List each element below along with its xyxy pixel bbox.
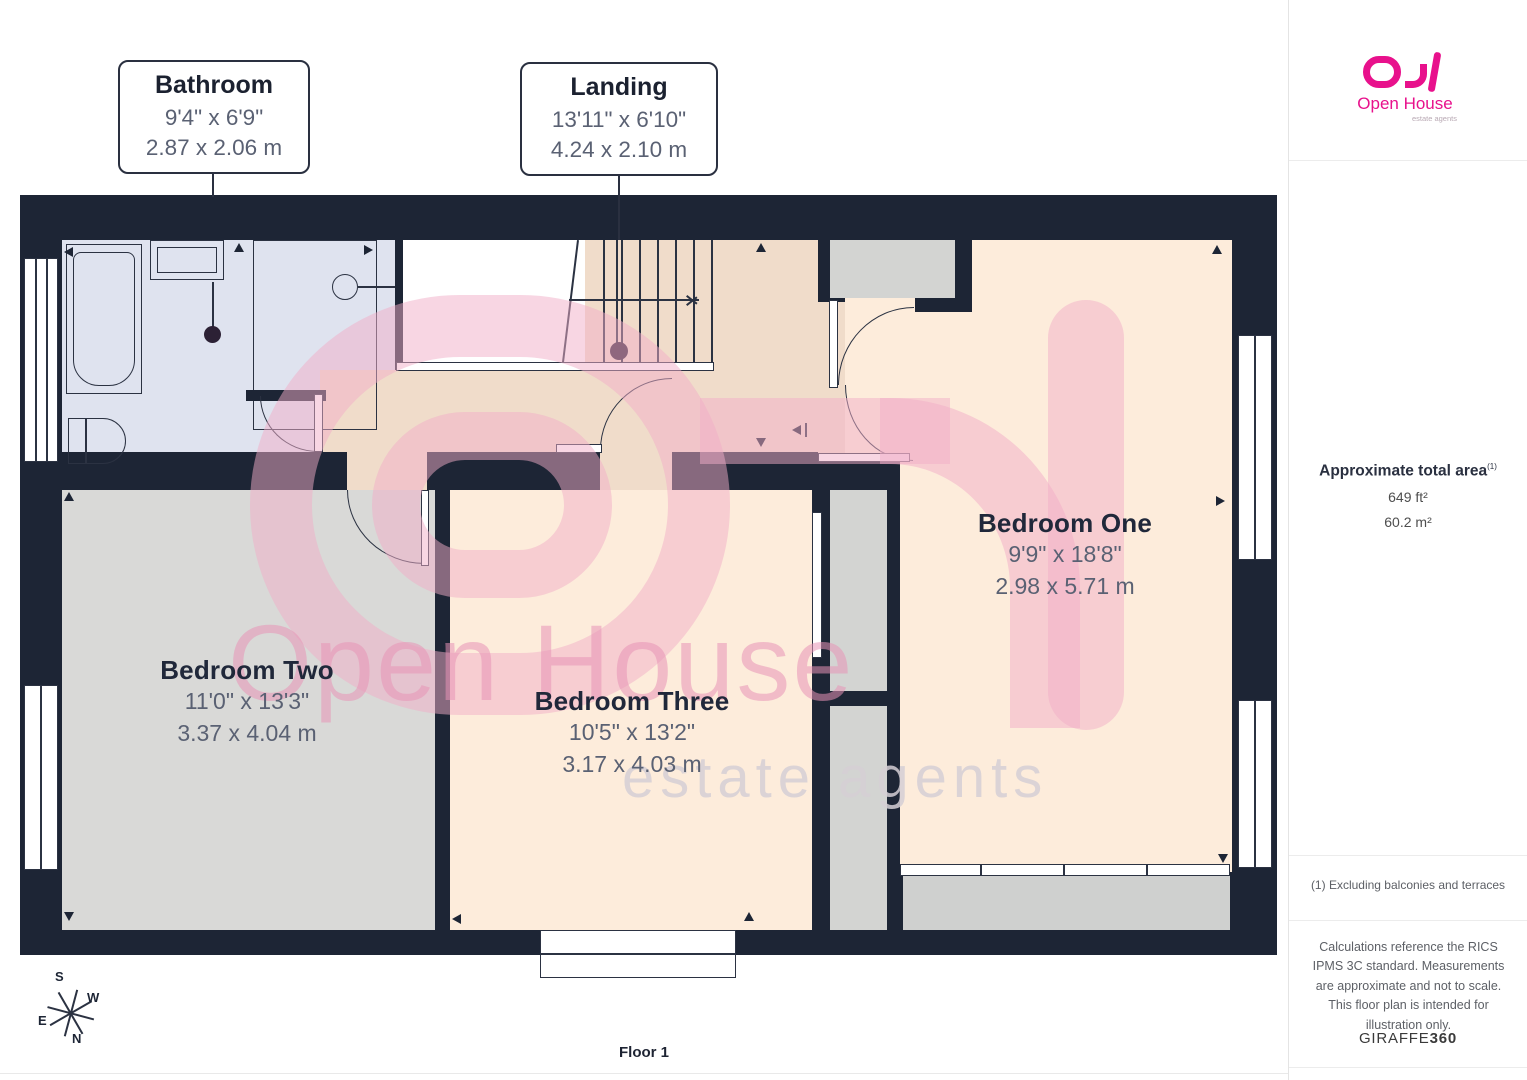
bathtub-inner xyxy=(73,252,135,386)
logo-brand-text: Open House xyxy=(1345,94,1465,114)
dimension-arrow xyxy=(234,243,244,252)
compass-north: N xyxy=(72,1031,81,1046)
sidebar-divider xyxy=(1289,920,1527,921)
area-footnote: (1) Excluding balconies and terraces xyxy=(1297,878,1519,892)
callout-title: Bathroom xyxy=(120,71,308,100)
room-dims-metric: 2.98 x 5.71 m xyxy=(905,571,1225,603)
stair-handrail xyxy=(616,240,618,350)
openhouse-logo: Open House estate agents xyxy=(1353,50,1463,130)
bedroom-one-door-leaf xyxy=(818,453,910,462)
dimension-arrow xyxy=(452,914,461,924)
juliet-window xyxy=(900,864,1230,876)
dimension-tick xyxy=(805,423,807,437)
storage-door-leaf xyxy=(812,512,822,658)
floor-label: Floor 1 xyxy=(0,1044,1288,1061)
compass-east: E xyxy=(38,1013,47,1028)
juliet-mullion xyxy=(1146,864,1148,876)
sidebar-divider xyxy=(1289,160,1527,161)
window-left-bathroom xyxy=(24,258,58,462)
landing-callout: Landing 13'11" x 6'10" 4.24 x 2.10 m xyxy=(520,62,718,176)
room-dims-imperial: 10'5" x 13'2" xyxy=(472,717,792,749)
logo-leg-icon xyxy=(1428,52,1442,93)
bathroom-callout-connector xyxy=(212,173,214,197)
room-title: Bedroom Three xyxy=(472,686,792,717)
dimension-arrow xyxy=(64,247,73,257)
stairwell-void xyxy=(403,240,585,366)
window-mullion xyxy=(35,259,37,461)
disclaimer-text: Calculations reference the RICS IPMS 3C … xyxy=(1306,938,1511,1035)
floorplan-page: Open House estate agents Bedroom Two 11'… xyxy=(0,0,1527,1080)
light-point-bathroom xyxy=(204,326,221,343)
window-mullion xyxy=(541,953,735,955)
bedroom-three-door-leaf xyxy=(556,444,602,453)
closet-floor xyxy=(830,240,955,298)
bedroom-two-door-leaf xyxy=(421,490,429,566)
stair-newel-dot xyxy=(610,342,628,360)
total-area-block: Approximate total area(1) 649 ft² 60.2 m… xyxy=(1297,462,1519,530)
total-area-metric: 60.2 m² xyxy=(1297,514,1519,530)
room-title: Bedroom Two xyxy=(87,655,407,686)
dimension-arrow xyxy=(64,492,74,501)
shower-arm-line xyxy=(358,286,395,288)
sidebar-divider xyxy=(1289,855,1527,856)
bathroom-callout: Bathroom 9'4" x 6'9" 2.87 x 2.06 m xyxy=(118,60,310,174)
dimension-arrow xyxy=(756,243,766,252)
room-dims-imperial: 9'9" x 18'8" xyxy=(905,539,1225,571)
landing-callout-connector xyxy=(618,175,620,240)
dimension-arrow xyxy=(1212,245,1222,254)
callout-imperial: 13'11" x 6'10" xyxy=(522,105,716,135)
info-sidebar: Open House estate agents Approximate tot… xyxy=(1288,0,1527,1080)
stair-tread xyxy=(603,240,605,366)
bathroom-door-leaf xyxy=(314,394,323,452)
logo-tagline-text: estate agents xyxy=(1377,114,1457,123)
callout-imperial: 9'4" x 6'9" xyxy=(120,103,308,133)
room-title: Bedroom One xyxy=(905,508,1225,539)
closet-door-leaf xyxy=(829,300,838,388)
room-dims-metric: 3.37 x 4.04 m xyxy=(87,718,407,750)
total-area-imperial: 649 ft² xyxy=(1297,489,1519,505)
total-area-heading: Approximate total area xyxy=(1319,462,1487,479)
stair-tread xyxy=(657,240,659,366)
dimension-arrow xyxy=(1216,496,1225,506)
callout-title: Landing xyxy=(522,73,716,102)
compass-south: S xyxy=(55,969,64,984)
stair-landing-edge xyxy=(396,362,714,371)
toilet-tank-icon xyxy=(68,418,86,464)
window-mullion xyxy=(1254,701,1256,867)
storage-column-floor xyxy=(830,490,887,930)
window-mullion xyxy=(46,259,48,461)
callout-metric: 2.87 x 2.06 m xyxy=(120,133,308,163)
callout-metric: 4.24 x 2.10 m xyxy=(522,135,716,165)
sink-stem-line xyxy=(212,282,214,328)
room-dims-imperial: 11'0" x 13'3" xyxy=(87,686,407,718)
closet-wall-right xyxy=(955,240,972,312)
provider-suffix: 360 xyxy=(1430,1030,1457,1047)
juliet-mullion xyxy=(1063,864,1065,876)
window-mullion xyxy=(1254,336,1256,559)
bedroom-three-door-gap xyxy=(600,452,672,490)
dimension-arrow xyxy=(744,912,754,921)
dimension-arrow xyxy=(364,245,373,255)
dimension-arrow xyxy=(64,912,74,921)
provider-name: GIRAFFE xyxy=(1359,1030,1430,1047)
compass-west: W xyxy=(87,990,99,1005)
bedroom-one-label: Bedroom One 9'9" x 18'8" 2.98 x 5.71 m xyxy=(905,508,1225,602)
sink-inner xyxy=(157,247,217,273)
balcony-floor xyxy=(903,876,1230,930)
sidebar-divider xyxy=(1289,1067,1527,1068)
footnote-marker: (1) xyxy=(1487,462,1497,471)
stair-edge xyxy=(711,240,713,366)
landing-floor-right xyxy=(712,240,818,452)
provider-logo: GIRAFFE360 xyxy=(1297,1030,1519,1047)
logo-o-icon xyxy=(1363,56,1401,88)
window-mullion xyxy=(40,686,42,869)
dimension-arrow xyxy=(792,425,801,435)
dimension-arrow xyxy=(1218,854,1228,863)
juliet-mullion xyxy=(980,864,982,876)
bedroom-two-door-gap xyxy=(347,452,427,490)
dimension-arrow xyxy=(756,438,766,447)
room-dims-metric: 3.17 x 4.03 m xyxy=(472,749,792,781)
bedroom-two-label: Bedroom Two 11'0" x 13'3" 3.37 x 4.04 m xyxy=(87,655,407,749)
logo-hook-icon xyxy=(1405,64,1427,88)
storage-divider-wall xyxy=(830,691,887,706)
stair-direction-line xyxy=(569,299,699,301)
stair-tread xyxy=(639,240,641,366)
shower-head-icon xyxy=(332,274,358,300)
stair-tread xyxy=(675,240,677,366)
bedroom-three-label: Bedroom Three 10'5" x 13'2" 3.17 x 4.03 … xyxy=(472,686,792,780)
compass-line xyxy=(58,992,83,1034)
